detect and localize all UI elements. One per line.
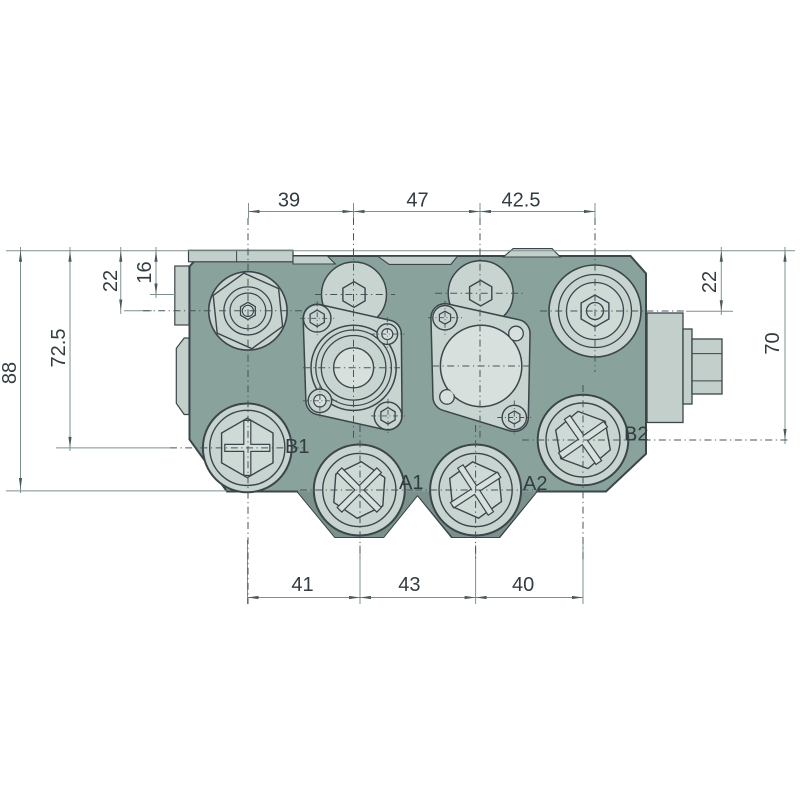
svg-text:40: 40 — [512, 574, 534, 596]
svg-text:43: 43 — [398, 574, 420, 596]
svg-text:72.5: 72.5 — [48, 329, 70, 368]
svg-text:22: 22 — [699, 271, 721, 293]
svg-text:A2: A2 — [523, 473, 547, 495]
svg-text:70: 70 — [762, 332, 784, 354]
svg-text:41: 41 — [291, 574, 313, 596]
svg-text:88: 88 — [0, 362, 21, 384]
svg-text:B1: B1 — [285, 436, 309, 458]
svg-text:22: 22 — [100, 270, 122, 292]
svg-text:A1: A1 — [399, 472, 423, 494]
svg-text:47: 47 — [406, 190, 428, 212]
svg-text:16: 16 — [134, 261, 156, 283]
svg-text:42.5: 42.5 — [502, 190, 541, 212]
svg-text:39: 39 — [278, 190, 300, 212]
svg-text:B2: B2 — [624, 424, 648, 446]
